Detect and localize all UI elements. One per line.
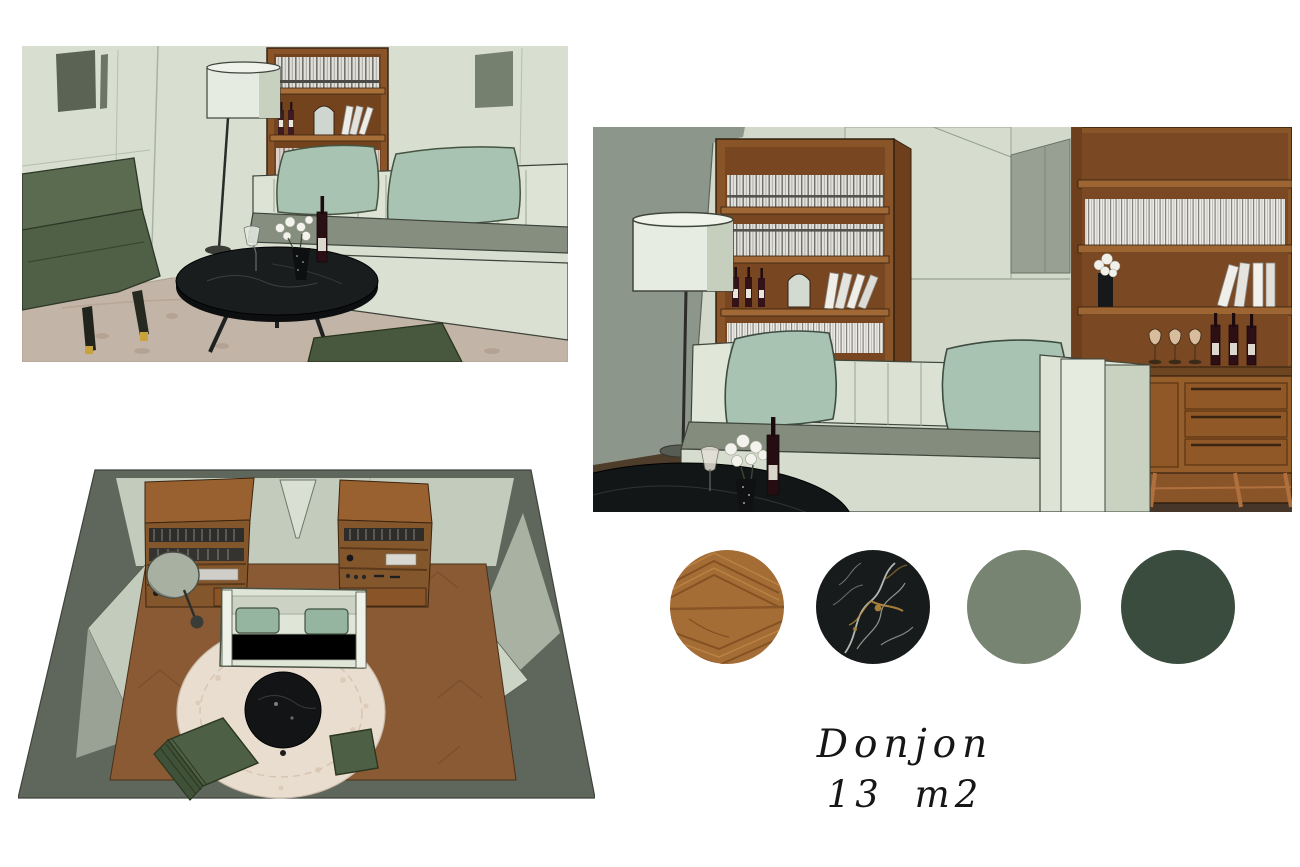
sofa-top [220, 588, 366, 668]
render-top-down-view [18, 468, 595, 803]
room-name: Donjon [745, 720, 1065, 771]
swatch-wood-parquet [669, 549, 785, 665]
cushion-left-top [236, 608, 279, 633]
render-perspective-wide [593, 127, 1292, 512]
cushion-right [388, 147, 521, 224]
room-title-block: Donjon 13 m2 [745, 720, 1065, 819]
ottoman-top [330, 729, 378, 775]
cushion-left [277, 145, 379, 214]
bookshelf-right-top [338, 480, 432, 607]
render-perspective-closeup [22, 46, 568, 362]
swatch-sage-green [966, 549, 1082, 665]
white-books-row [1085, 199, 1285, 245]
bell-jar [788, 274, 810, 307]
cushion-right-top [305, 609, 348, 634]
swatch-black-marble [815, 549, 931, 665]
swatch-forest-green [1120, 549, 1236, 665]
presentation-board: Donjon 13 m2 [0, 0, 1300, 867]
cushion-left [725, 331, 836, 425]
room-area: 13 m2 [745, 771, 1065, 819]
arch-mirror [314, 106, 334, 135]
